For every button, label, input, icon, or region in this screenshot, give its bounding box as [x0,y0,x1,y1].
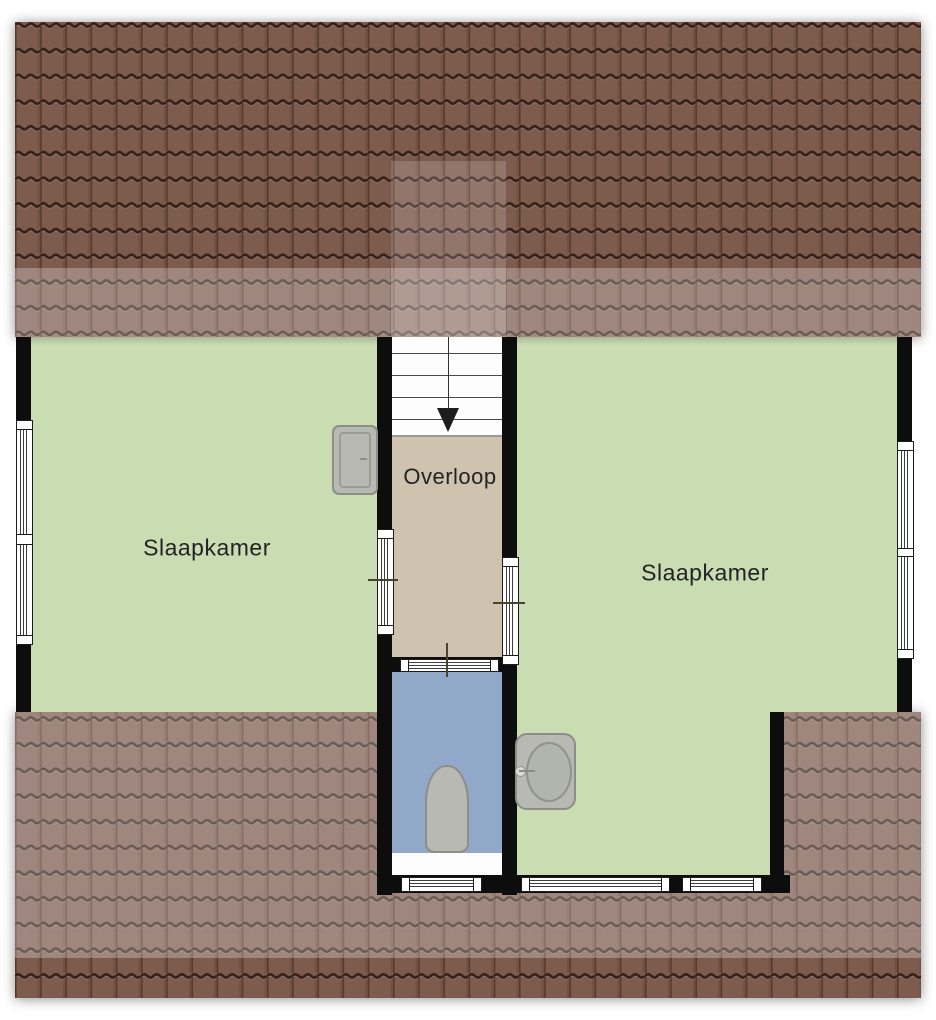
window-bathroom-bottom [401,877,482,892]
stairwell-through-roof [390,160,507,339]
window-cap [682,877,691,892]
window-cap [521,877,530,892]
cabinet-handle [360,458,367,460]
window-bedroom-right-bottom-2 [682,877,762,892]
room-bedroom-right [517,337,897,712]
staircase [392,337,502,437]
room-label-bedroom-right: Slaapkamer [641,560,769,587]
sink-icon [515,733,576,810]
door-bedroom-left [377,529,394,635]
door-bedroom-right [502,557,519,665]
stair-tread [392,353,502,354]
window-left-wall [16,420,33,645]
window-right-wall [897,441,914,659]
door-leaf-bathroom [446,643,448,677]
door-leaf-left [368,579,398,581]
stair-tread [392,375,502,376]
door-cap [400,659,409,672]
toilet-icon [425,765,469,853]
wall-bedroom-right-corner [770,712,784,892]
room-label-landing: Overloop [403,464,496,490]
floorplan-page: Slaapkamer Slaapkamer Overloop [0,0,936,1020]
room-bedroom-left [31,337,377,712]
window-cap [16,635,33,645]
door-cap [377,625,394,635]
door-cap [377,529,394,539]
stair-tread [392,397,502,398]
door-leaf-right [493,602,525,604]
door-cap [502,655,519,665]
window-cap [661,877,670,892]
window-cap [473,877,482,892]
window-cap [16,420,33,430]
bathroom-knee-strip [392,853,502,875]
door-cap [502,557,519,567]
stairs-down-arrow-icon [437,408,459,432]
window-bedroom-right-bottom-1 [521,877,670,892]
cabinet-door [339,432,371,488]
floor-plan: Slaapkamer Slaapkamer Overloop [15,22,921,998]
sink-tap [519,770,535,772]
door-bathroom [400,659,499,672]
window-divider [16,534,33,545]
door-cap [490,659,499,672]
window-cap [897,441,914,451]
room-label-bedroom-left: Slaapkamer [143,535,271,562]
sink-basin [526,742,572,802]
wall-cabinet-icon [332,425,378,495]
window-cap [897,649,914,659]
window-cap [401,877,410,892]
window-cap [753,877,762,892]
window-divider [897,548,914,557]
